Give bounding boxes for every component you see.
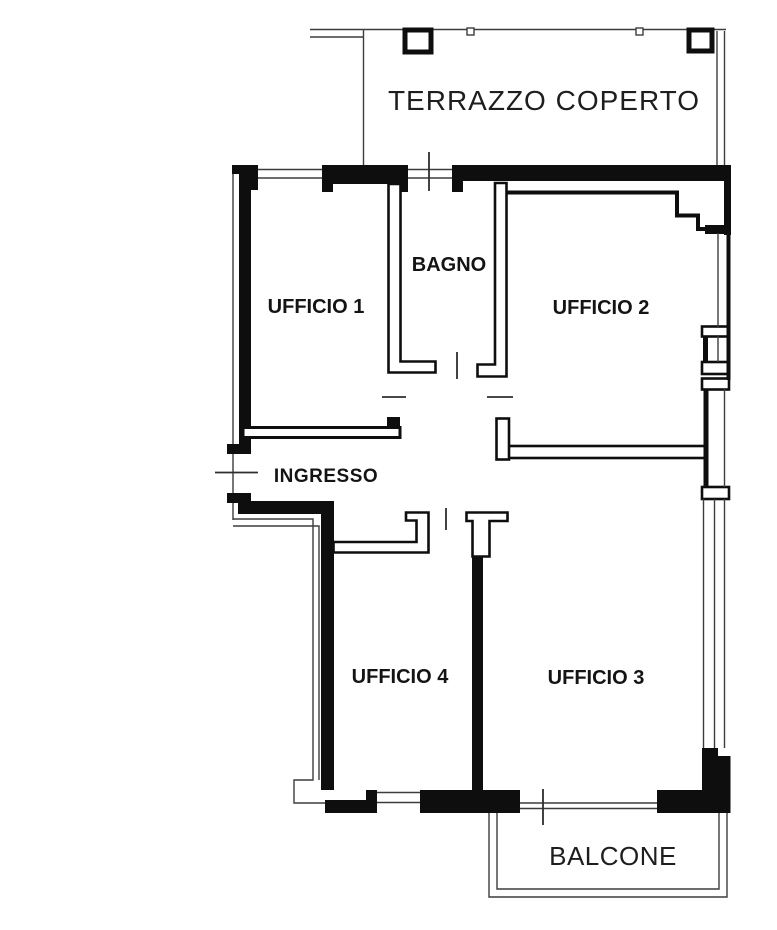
windows [258, 152, 657, 825]
floor-plan-drawing: TERRAZZO COPERTO UFFICIO 1 BAGNO UFFICIO… [0, 0, 777, 930]
floor-plan-page: TERRAZZO COPERTO UFFICIO 1 BAGNO UFFICIO… [0, 0, 777, 930]
window-ufficio3-balcony [520, 789, 657, 825]
room-label-ingresso: INGRESSO [274, 466, 378, 487]
terrace-post-mark [636, 28, 643, 35]
window-ufficio1 [258, 170, 322, 179]
room-label-terrazzo-coperto: TERRAZZO COPERTO [388, 85, 700, 116]
terrace-post-mark [467, 28, 474, 35]
terrace-column [689, 30, 712, 51]
room-label-ufficio-4: UFFICIO 4 [352, 666, 450, 688]
right-wall-lines [507, 191, 729, 749]
hollow-walls [243, 183, 729, 557]
window-ufficio4 [377, 793, 420, 803]
room-label-ufficio-1: UFFICIO 1 [268, 296, 365, 318]
room-label-balcone: BALCONE [549, 841, 677, 871]
room-label-ufficio-2: UFFICIO 2 [553, 297, 650, 319]
window-bagno [408, 152, 452, 191]
room-label-ufficio-3: UFFICIO 3 [548, 667, 645, 689]
terrace-column [405, 30, 431, 52]
room-label-bagno: BAGNO [412, 254, 486, 276]
